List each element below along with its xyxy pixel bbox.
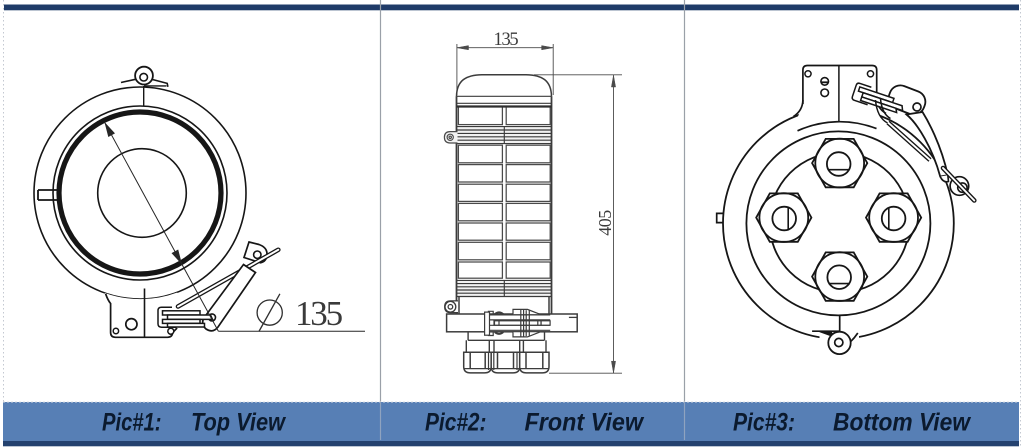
svg-text:Pic#1:: Pic#1: <box>102 409 162 437</box>
svg-text:Top View: Top View <box>191 409 286 437</box>
svg-text:Bottom View: Bottom View <box>833 409 971 437</box>
svg-text:135: 135 <box>494 30 519 50</box>
svg-text:Pic#2:: Pic#2: <box>425 409 487 437</box>
svg-text:405: 405 <box>595 210 615 236</box>
svg-text:Front View: Front View <box>525 409 645 437</box>
svg-text:Pic#3:: Pic#3: <box>733 409 795 437</box>
svg-text:135: 135 <box>295 294 343 333</box>
